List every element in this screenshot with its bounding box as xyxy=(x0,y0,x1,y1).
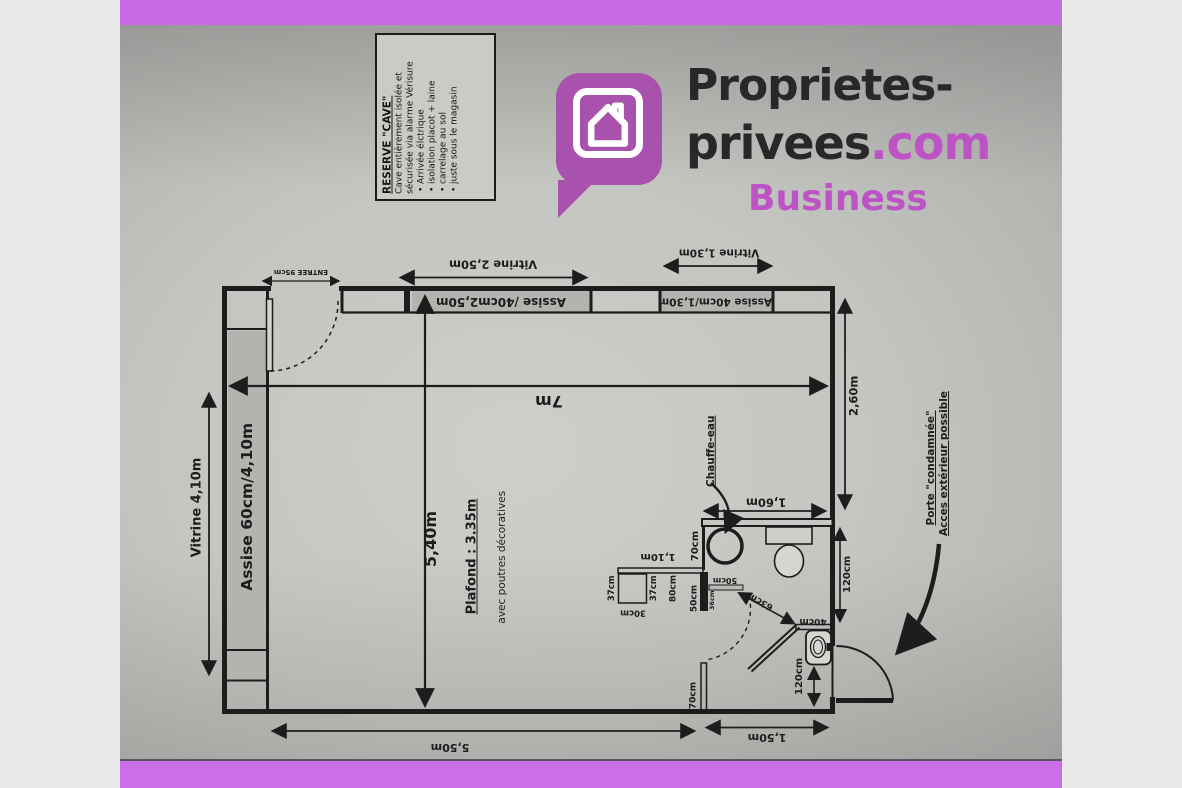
reserve-bullet: carrelage au sol xyxy=(438,40,449,194)
brand-name-privees: privees xyxy=(686,116,870,170)
label-ceiling-note: avec poutres décoratives xyxy=(497,477,508,637)
brand-name-line2: privees.com xyxy=(686,120,990,166)
label-porte-line1: Porte "condamnée" xyxy=(925,400,938,536)
label-70cm-bath-wall: 70cm xyxy=(691,529,701,563)
house-icon xyxy=(580,95,636,151)
label-assise-top: Assise /40cm2,50m xyxy=(431,296,571,308)
label-1-60m: 1,60m xyxy=(741,496,791,508)
label-1-10m: 1,10m xyxy=(638,551,678,561)
label-80cm: 80cm xyxy=(670,574,679,604)
label-36cm: 36cm xyxy=(709,588,716,612)
label-chauffe-eau: Chauffe-eau xyxy=(706,415,717,487)
bottom-banner-bar xyxy=(120,761,1062,788)
label-50cm-horizontal: 50cm xyxy=(711,576,739,584)
label-assise-top-right: Assise 40cm/1,30m xyxy=(662,296,772,307)
label-2-60m: 2,60m xyxy=(848,375,860,417)
label-vitrine-left: Vitrine 4,10m xyxy=(191,453,204,563)
reserve-bullet: juste sous le magasin xyxy=(449,40,460,194)
label-1-50m: 1,50m xyxy=(744,732,790,743)
reserve-title: RESERVE "CAVE" xyxy=(381,40,393,194)
label-30cm: 30cm xyxy=(618,608,648,617)
label-5-50m: 5,50m xyxy=(427,742,473,753)
label-ceiling-height: Plafond : 3.35m xyxy=(466,492,479,622)
label-entree: ENTREE 95cm xyxy=(271,268,331,275)
label-vitrine-top: Vitrine 2,50m xyxy=(443,258,543,270)
speech-bubble-icon xyxy=(556,73,662,185)
brand-name-line1: Proprietes- xyxy=(686,64,953,108)
label-width-7m: 7m xyxy=(529,393,569,409)
reserve-cave-note-text: RESERVE "CAVE" Cave entièrement isolée e… xyxy=(381,40,490,194)
label-40cm-sink: 40cm xyxy=(798,616,828,625)
label-porte-condamnee: Porte "condamnée" Acces extérieur possib… xyxy=(925,400,951,536)
label-37cm-right: 37cm xyxy=(650,573,659,603)
brand-name-business: Business xyxy=(748,181,928,217)
logo-frame xyxy=(573,88,643,158)
brand-name-com: .com xyxy=(870,116,990,170)
label-70cm-stub: 70cm xyxy=(690,681,699,711)
reserve-bullet: isolation placot + laine xyxy=(427,40,438,194)
reserve-cave-note: RESERVE "CAVE" Cave entièrement isolée e… xyxy=(375,33,496,201)
label-50cm-vertical: 50cm xyxy=(691,584,700,614)
reserve-bullet: Arrivée élctrique xyxy=(416,40,427,194)
reserve-line: sécurisée via alarme Vérisure xyxy=(405,40,416,194)
label-depth-5-40m: 5,40m xyxy=(423,504,439,574)
top-banner-bar xyxy=(120,0,1062,25)
label-37cm-left: 37cm xyxy=(608,573,617,603)
label-vitrine-top-right: Vitrine 1,30m xyxy=(674,247,764,258)
label-120cm-lower: 120cm xyxy=(795,659,805,695)
label-assise-left: Assise 60cm/4,10m xyxy=(240,419,256,594)
label-120cm-upper: 120cm xyxy=(843,557,853,593)
screenshot-root: RESERVE "CAVE" Cave entièrement isolée e… xyxy=(0,0,1182,788)
label-porte-line2: Acces extérieur possible xyxy=(938,400,951,536)
reserve-line: Cave entièrement isolée et xyxy=(394,40,405,194)
